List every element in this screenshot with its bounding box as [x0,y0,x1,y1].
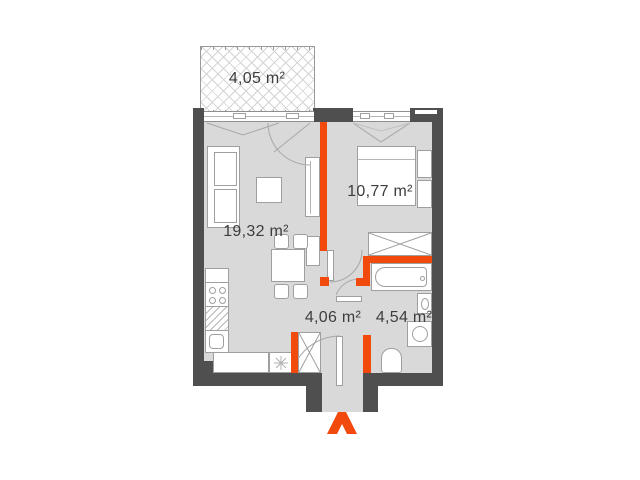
accent-wall-stub [320,277,329,286]
wardrobe-cross-icon [299,333,320,372]
cabinet-cross-icon [369,233,431,255]
window-swing-icon [353,123,410,131]
floor-plan: 4,05 m² 19,32 m² 10,77 m² 4,06 m² 4,54 m… [0,0,640,480]
wall-left [193,108,204,385]
wall-bottom-left [193,373,322,386]
fridge-snowflake-icon [274,356,288,370]
balcony-door-arc [268,123,310,165]
accent-wall-bath-door-stub [356,278,363,286]
window-mullion [360,113,370,119]
room-label-bedroom: 10,77 m² [347,183,413,201]
window-mullion [233,113,246,119]
accent-wall-bath-left-lower [363,335,371,373]
accent-wall-living-bedroom [320,122,327,251]
room-label-balcony: 4,05 m² [229,70,285,88]
wall-entry-stub-left [306,385,322,412]
accent-wall-bath-left-upper [363,256,370,286]
wall-right [432,108,443,375]
wall-lintel-mark [415,110,437,114]
accent-wall-bath-top [363,256,432,263]
window-mullion [384,113,394,119]
wall-entry-stub-right [363,385,378,412]
balcony-door-leaf-line [274,123,310,152]
bathroom-door-arc [336,279,358,295]
accent-wall-kitchen [291,332,298,373]
room-label-living: 19,32 m² [223,223,289,241]
wall-top-middle [313,108,353,122]
room-label-bathroom: 4,54 m² [376,309,432,327]
window-mullion [286,113,299,119]
room-label-hall: 4,06 m² [305,309,361,327]
entrance-arrow-icon [327,412,357,434]
